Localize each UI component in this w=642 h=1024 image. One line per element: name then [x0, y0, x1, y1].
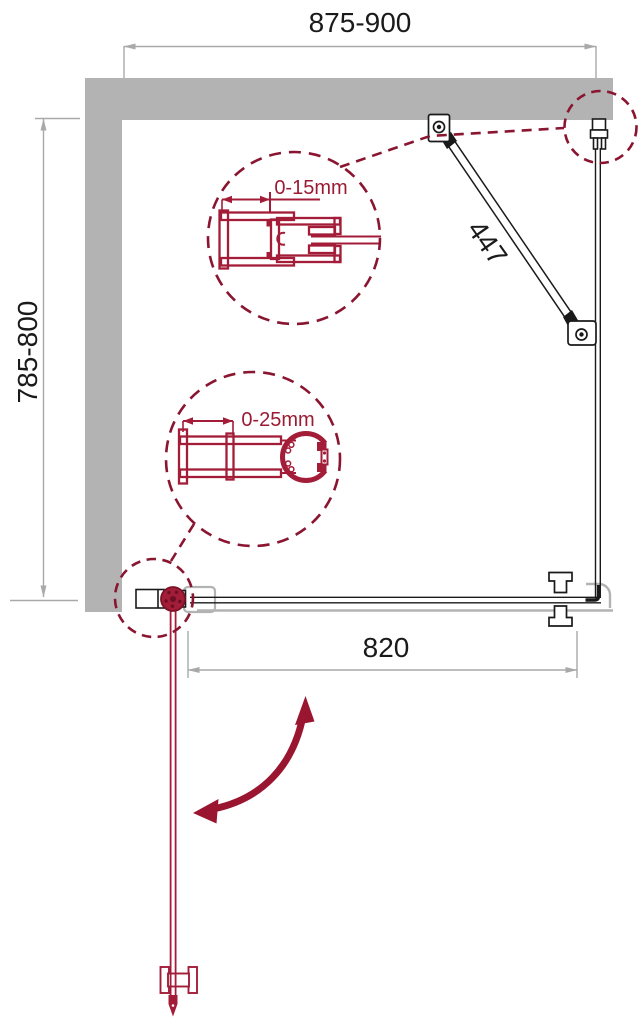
detail-circle-bottom: [166, 372, 340, 546]
shower-door: [171, 599, 176, 995]
door-swing-arrow: [193, 696, 315, 824]
walls: [85, 78, 613, 612]
support-bar: [429, 115, 597, 346]
diagram-drawing: [0, 0, 642, 1024]
left-depth-label: 785-800: [13, 252, 43, 452]
wall-top: [85, 78, 613, 120]
detail-profile-0-15: [220, 192, 382, 269]
hinge-wall-bracket: [184, 587, 215, 612]
door-handle-knob: [161, 967, 198, 993]
front-panel-rail: [190, 597, 601, 603]
rail-knob-connector: [549, 573, 572, 627]
fixed-side-panel: [596, 148, 601, 598]
wall-bracket-top-right: [591, 119, 608, 149]
leader-line-bottom: [171, 524, 194, 561]
front-width-label: 820: [336, 633, 436, 663]
door-hinge: [161, 587, 185, 611]
top-width-label: 875-900: [260, 6, 460, 40]
wall-left: [85, 78, 122, 612]
callouts: [115, 91, 637, 637]
detail-top-adjustment-label: 0-15mm: [261, 176, 361, 200]
installation-diagram: 875-900 785-800 447 820 0-15mm 0-25mm: [0, 0, 642, 1024]
detail-bottom-adjustment-label: 0-25mm: [228, 408, 328, 432]
dimension-top-width: [124, 46, 596, 78]
